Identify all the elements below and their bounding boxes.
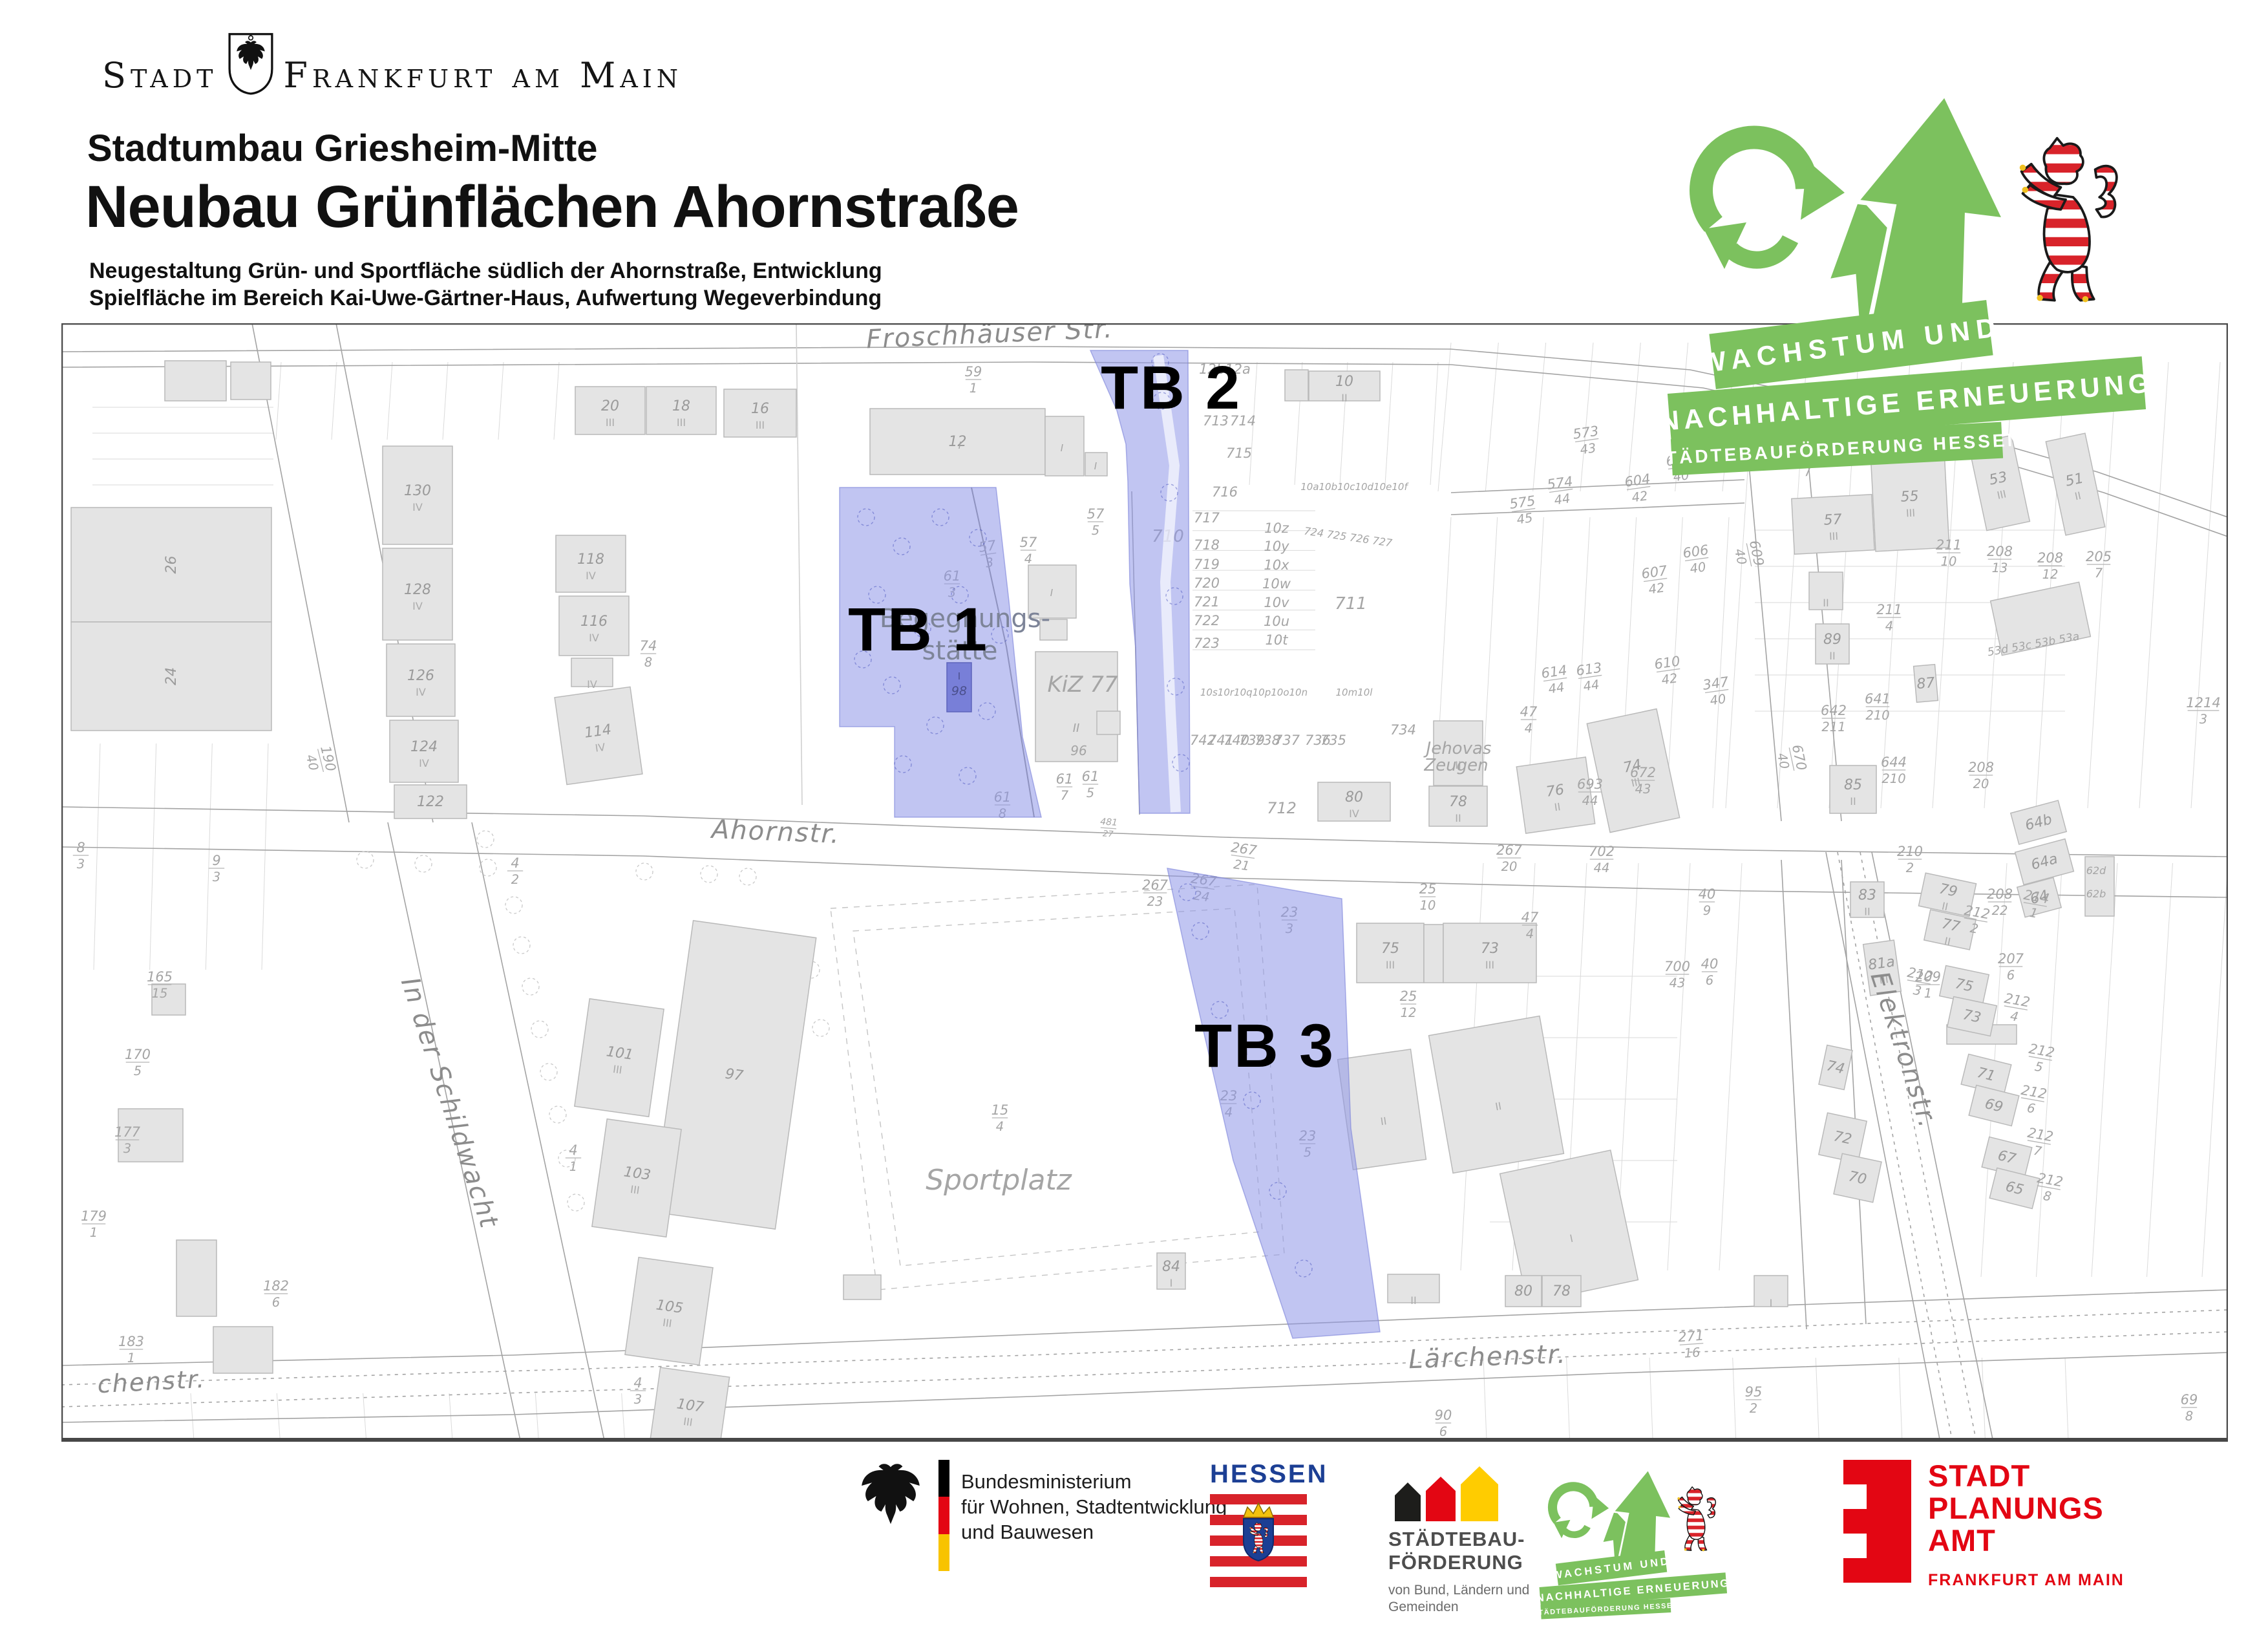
svg-text:27: 27 [1102, 829, 1114, 839]
svg-text:87: 87 [1916, 675, 1936, 692]
svg-text:711: 711 [1335, 594, 1367, 614]
parcel-fraction: 20820 [1968, 760, 1994, 791]
parcel-fraction: 26720 [1496, 842, 1523, 874]
parcel-fraction: 20813 [1987, 544, 2013, 575]
building: 124IV [390, 720, 458, 782]
svg-text:IV: IV [419, 757, 429, 769]
svg-text:Lärchenstr.: Lärchenstr. [1408, 1340, 1567, 1375]
svg-text:9: 9 [212, 853, 220, 868]
building [231, 362, 271, 400]
building: 84I [1157, 1253, 1185, 1289]
parcel-fraction: 83 [73, 840, 89, 872]
parcel-fraction: 617 [1056, 771, 1074, 803]
svg-text:10: 10 [1420, 898, 1436, 913]
svg-text:4: 4 [1525, 721, 1532, 736]
svg-text:10a10b10c10d10e10f: 10a10b10c10d10e10f [1300, 481, 1409, 493]
svg-text:IV: IV [589, 632, 599, 644]
svg-text:III: III [630, 1183, 641, 1197]
svg-text:211: 211 [1821, 720, 1845, 734]
svg-text:III: III [662, 1316, 673, 1330]
svg-text:II: II [1864, 906, 1870, 918]
svg-text:177: 177 [114, 1124, 141, 1140]
parcel-fraction: 1791 [81, 1208, 107, 1240]
svg-text:In der Schildwacht: In der Schildwacht [395, 974, 504, 1232]
svg-text:208: 208 [1987, 544, 2013, 559]
svg-text:II: II [1073, 722, 1080, 735]
spa-sub: FRANKFURT AM MAIN [1928, 1571, 2125, 1590]
svg-text:25: 25 [1400, 989, 1417, 1004]
svg-text:481: 481 [1100, 817, 1118, 828]
stb-title: STÄDTEBAU- FÖRDERUNG [1388, 1528, 1529, 1574]
svg-text:179: 179 [81, 1208, 107, 1224]
hessen-coat-of-arms [1244, 1503, 1273, 1561]
subtitle-line-2: Spielfläche im Bereich Kai-Uwe-Gärtner-H… [89, 284, 882, 312]
parcel-fraction: 474 [1520, 704, 1538, 736]
svg-text:642: 642 [1821, 703, 1847, 718]
svg-text:1: 1 [569, 1159, 577, 1174]
spa-line2: PLANUNGS [1928, 1492, 2125, 1524]
svg-text:98: 98 [951, 684, 967, 698]
wachstum-erneuerung-logo-small: WACHSTUM UNDNACHHALTIGE ERNEUERUNGSTÄDTE… [1533, 1456, 1746, 1626]
svg-text:128: 128 [404, 582, 431, 598]
wachstum-logo-group: WACHSTUM UNDNACHHALTIGE ERNEUERUNGSTÄDTE… [1652, 85, 2156, 476]
area-label-tb1: TB 1 [848, 595, 989, 664]
building [843, 1275, 881, 1300]
svg-text:672: 672 [1630, 765, 1656, 780]
svg-text:3: 3 [1912, 983, 1922, 999]
svg-text:10u: 10u [1264, 614, 1289, 629]
staedtebau-houses-icon [1388, 1460, 1503, 1524]
parcel-fraction: 952 [1745, 1384, 1763, 1416]
svg-text:II: II [1455, 812, 1461, 824]
parcel-fraction: 2512 [1400, 989, 1417, 1020]
svg-text:12: 12 [949, 434, 967, 450]
svg-text:5: 5 [1086, 786, 1094, 800]
wachstum-erneuerung-logo: WACHSTUM UNDNACHHALTIGE ERNEUERUNGSTÄDTE… [1652, 59, 2195, 493]
svg-text:Sportplatz: Sportplatz [926, 1164, 1072, 1197]
svg-text:208: 208 [1968, 760, 1994, 775]
parcel-fraction: 2057 [2086, 549, 2112, 581]
svg-text:165: 165 [147, 969, 173, 985]
building: 57III [1792, 495, 1874, 554]
building: 97 [652, 921, 816, 1229]
svg-text:43: 43 [1635, 782, 1651, 797]
parcel-fraction: 61042 [1653, 653, 1684, 688]
svg-text:42: 42 [1631, 488, 1649, 505]
building: 116IV [559, 596, 629, 656]
building: 101III [575, 999, 664, 1117]
svg-text:1: 1 [970, 381, 977, 396]
svg-text:4: 4 [1885, 619, 1893, 634]
svg-text:10y: 10y [1264, 539, 1289, 554]
svg-text:69: 69 [2181, 1392, 2198, 1407]
parcel-fraction: 642211 [1821, 703, 1847, 734]
building: 26 [71, 508, 271, 622]
svg-text:57: 57 [1087, 506, 1105, 522]
svg-text:III: III [756, 419, 765, 431]
svg-text:735: 735 [1320, 733, 1346, 748]
svg-text:57: 57 [1823, 511, 1842, 528]
svg-text:2: 2 [1906, 861, 1914, 875]
parcel-fraction: 591 [965, 364, 982, 396]
building: 107III [650, 1367, 729, 1442]
svg-text:Zeugen: Zeugen [1423, 756, 1488, 775]
building: 105III [625, 1257, 713, 1365]
hessen-lion-icon [2020, 138, 2117, 303]
building: 122 [394, 785, 467, 818]
svg-text:89: 89 [1823, 632, 1841, 648]
svg-text:212: 212 [2020, 1082, 2048, 1102]
svg-text:III: III [612, 1063, 623, 1076]
building: 78II [1429, 786, 1487, 826]
bm-line1: Bundesministerium [961, 1469, 1227, 1494]
parcel-fraction: 1831 [118, 1334, 144, 1365]
parcel-fraction: 26723 [1142, 877, 1169, 909]
svg-text:26: 26 [164, 556, 180, 574]
german-flag-bar-icon [938, 1460, 949, 1571]
parcel-fraction: 57444 [1546, 473, 1576, 508]
svg-text:6: 6 [272, 1295, 280, 1310]
svg-text:10w: 10w [1262, 576, 1291, 592]
parcel-fraction: 26721 [1228, 839, 1258, 874]
building: 78 [1542, 1276, 1581, 1307]
svg-text:II: II [1341, 392, 1347, 404]
stb-line1: STÄDTEBAU- [1388, 1528, 1529, 1551]
svg-text:718: 718 [1194, 537, 1220, 553]
city-logo-word-stadt: Stadt [102, 58, 218, 97]
svg-text:10t: 10t [1266, 632, 1289, 648]
bm-line3: und Bauwesen [961, 1519, 1227, 1545]
building: 83II [1850, 882, 1884, 918]
svg-text:5: 5 [134, 1064, 142, 1078]
svg-text:I: I [959, 440, 962, 451]
svg-text:III: III [1828, 530, 1838, 543]
svg-text:20: 20 [1973, 776, 1989, 791]
parcel-fraction: 27116 [1677, 1328, 1705, 1362]
building: 24 [71, 622, 271, 731]
svg-text:124: 124 [410, 739, 438, 755]
svg-text:212: 212 [2003, 990, 2031, 1011]
parcel-fraction: 57545 [1509, 493, 1539, 528]
spa-text: STADT PLANUNGS AMT FRANKFURT AM MAIN [1928, 1460, 2125, 1590]
svg-text:6: 6 [1706, 973, 1713, 988]
svg-text:4: 4 [1024, 551, 1032, 566]
building: II [1388, 1274, 1439, 1307]
svg-text:183: 183 [118, 1334, 144, 1349]
svg-text:IV: IV [412, 600, 423, 612]
parcel-fraction: 20822 [1987, 886, 2013, 918]
svg-text:IV: IV [594, 741, 606, 754]
frankfurt-eagle-shield-icon [227, 30, 275, 97]
svg-text:716: 716 [1212, 484, 1238, 500]
building: 103III [592, 1119, 681, 1237]
stb-line2: FÖRDERUNG [1388, 1551, 1529, 1574]
svg-text:40: 40 [1689, 559, 1707, 576]
svg-text:10x: 10x [1264, 557, 1289, 573]
parcel-fraction: 615 [1082, 769, 1099, 800]
svg-text:I: I [958, 670, 960, 682]
svg-text:40: 40 [1701, 956, 1719, 972]
parcel-fraction: 12143 [2186, 695, 2220, 727]
svg-text:16: 16 [1684, 1345, 1701, 1361]
svg-text:3: 3 [213, 870, 220, 884]
building: 10II [1309, 371, 1380, 404]
stb-sub1: von Bund, Ländern und [1388, 1582, 1529, 1599]
svg-text:III: III [1386, 959, 1395, 971]
svg-text:75: 75 [1381, 941, 1399, 957]
svg-text:47: 47 [1521, 910, 1539, 925]
parcel-fraction: 641210 [1865, 691, 1891, 723]
wachstum-logo-group: WACHSTUM UNDNACHHALTIGE ERNEUERUNGSTÄDTE… [1533, 1466, 1731, 1620]
svg-text:122: 122 [417, 794, 444, 810]
svg-text:95: 95 [1745, 1384, 1763, 1400]
building: 73III [1443, 923, 1536, 983]
subtitle-line-1: Neugestaltung Grün- und Sportfläche südl… [89, 257, 882, 284]
hessen-logo: HESSEN [1210, 1460, 1311, 1591]
svg-text:I: I [1061, 442, 1064, 454]
svg-text:10m10l: 10m10l [1336, 687, 1373, 698]
svg-text:170: 170 [125, 1047, 151, 1062]
parcel-fraction: 2126 [2017, 1082, 2048, 1118]
svg-text:IV: IV [586, 570, 596, 582]
svg-text:I: I [1770, 1297, 1773, 1309]
svg-text:212: 212 [1906, 965, 1934, 985]
svg-text:61: 61 [1056, 771, 1074, 787]
svg-text:641: 641 [1865, 691, 1891, 707]
parcel-fraction: 2510 [1419, 881, 1437, 913]
building: 128IV [383, 548, 452, 640]
svg-text:210: 210 [1897, 844, 1923, 859]
building [1045, 416, 1084, 476]
svg-text:4: 4 [569, 1142, 577, 1158]
spa-line3: AMT [1928, 1524, 2125, 1557]
building: I [1754, 1276, 1788, 1309]
recycle-arrows-icon [1701, 138, 1845, 269]
building: 16III [724, 389, 796, 437]
svg-text:1: 1 [90, 1225, 98, 1240]
svg-text:62d: 62d [2086, 864, 2106, 877]
svg-text:42: 42 [1660, 670, 1679, 687]
svg-text:212: 212 [2036, 1170, 2064, 1190]
building: 74 [1819, 1045, 1852, 1090]
parcel-fraction: 154 [991, 1102, 1009, 1134]
svg-text:44: 44 [1547, 679, 1565, 696]
svg-text:78: 78 [1449, 794, 1467, 810]
building: 64b [2011, 800, 2066, 844]
svg-text:717: 717 [1194, 510, 1220, 526]
parcel-fraction: 60742 [1640, 562, 1671, 597]
svg-text:3: 3 [77, 857, 85, 872]
svg-text:6: 6 [2026, 1100, 2036, 1117]
svg-text:8: 8 [2042, 1188, 2052, 1204]
growth-arrow-icon [1596, 1466, 1677, 1568]
svg-text:210: 210 [1865, 708, 1889, 723]
building: 75III [1357, 923, 1424, 983]
svg-text:84: 84 [1162, 1259, 1180, 1275]
svg-text:43: 43 [1579, 440, 1597, 457]
recycle-arrows-icon [1553, 1486, 1609, 1538]
svg-text:670: 670 [1789, 743, 1810, 772]
parcel-fraction: 575 [1087, 506, 1105, 538]
svg-text:10: 10 [1335, 374, 1353, 390]
parcel-fraction: 2102 [1897, 844, 1923, 875]
svg-text:44: 44 [1582, 793, 1598, 808]
svg-text:24: 24 [164, 667, 180, 685]
growth-arrow-icon [1813, 85, 2019, 345]
parcel-fraction: 906 [1435, 1407, 1452, 1439]
building-98: I98 [947, 663, 971, 712]
parcel-fraction: 574 [1020, 535, 1037, 566]
svg-text:208: 208 [2037, 550, 2063, 566]
parcel-fraction: 409 [1699, 886, 1716, 918]
stadtplanungsamt-glyph-icon [1843, 1460, 1911, 1583]
building: 80 [1505, 1276, 1542, 1307]
svg-text:715: 715 [1226, 445, 1252, 461]
svg-text:5: 5 [2033, 1059, 2044, 1075]
svg-text:4: 4 [1526, 926, 1534, 941]
svg-text:II: II [1823, 597, 1828, 609]
hessen-lion-icon [1677, 1487, 1715, 1552]
svg-text:I: I [1170, 1277, 1173, 1289]
building: 69 [1969, 1085, 2019, 1126]
svg-text:83: 83 [1858, 888, 1876, 904]
svg-text:10z: 10z [1264, 520, 1289, 536]
svg-text:644: 644 [1881, 754, 1907, 770]
parcel-fraction: 2124 [2000, 990, 2031, 1026]
building: II [1429, 1016, 1564, 1173]
svg-text:212: 212 [2026, 1125, 2055, 1145]
svg-text:I: I [1050, 587, 1054, 599]
parcel-fraction: 2076 [1998, 951, 2024, 983]
spa-line1: STADT [1928, 1460, 2125, 1492]
svg-text:62b: 62b [2086, 888, 2106, 900]
svg-text:25: 25 [1419, 881, 1437, 897]
svg-text:3: 3 [2199, 712, 2207, 727]
svg-text:2: 2 [1969, 921, 1979, 937]
svg-text:80: 80 [1345, 789, 1363, 806]
svg-text:1: 1 [1924, 986, 1932, 1001]
tb-areas [840, 350, 1380, 1338]
svg-text:126: 126 [407, 668, 434, 684]
svg-text:15: 15 [991, 1102, 1009, 1118]
parcel-fraction: 21110 [1936, 537, 1962, 569]
parcel-fraction: 61344 [1575, 659, 1606, 694]
stadtplanungsamt-logo: STADT PLANUNGS AMT FRANKFURT AM MAIN [1843, 1460, 2125, 1590]
svg-text:702: 702 [1589, 844, 1615, 859]
svg-text:40: 40 [303, 753, 321, 773]
svg-text:12: 12 [1401, 1005, 1417, 1020]
parcel-fraction: 19040 [302, 744, 339, 777]
parcel-fraction: 93 [209, 853, 224, 884]
svg-text:44: 44 [1594, 861, 1610, 875]
building [1097, 711, 1120, 734]
svg-text:720: 720 [1194, 575, 1220, 591]
svg-text:1: 1 [127, 1351, 135, 1365]
svg-text:700: 700 [1664, 959, 1690, 974]
svg-text:III: III [1905, 507, 1915, 520]
svg-text:12: 12 [2042, 567, 2059, 582]
parcel-fraction: 42 [507, 855, 523, 887]
building: 118IV [556, 535, 626, 592]
svg-text:59: 59 [965, 364, 982, 380]
svg-text:47: 47 [1520, 704, 1538, 720]
svg-text:20: 20 [1501, 859, 1518, 874]
svg-text:III: III [677, 416, 686, 429]
svg-text:III: III [1485, 959, 1494, 971]
staedtebaufoerderung-logo: STÄDTEBAU- FÖRDERUNG von Bund, Ländern u… [1388, 1460, 1529, 1616]
svg-text:1: 1 [2028, 905, 2039, 921]
building: 20III [575, 387, 645, 434]
svg-text:207: 207 [1998, 951, 2024, 967]
svg-text:II: II [1829, 650, 1835, 662]
building [1285, 370, 1308, 401]
area-label-tb2: TB 2 [1101, 354, 1242, 422]
svg-text:6: 6 [2007, 968, 2015, 983]
svg-text:737: 737 [1274, 733, 1300, 748]
svg-text:45: 45 [1516, 510, 1534, 527]
svg-text:130: 130 [404, 483, 431, 499]
building: 18III [646, 387, 716, 434]
svg-text:3: 3 [123, 1141, 131, 1156]
svg-text:211: 211 [1936, 537, 1962, 553]
parcel-fraction: 644210 [1881, 754, 1907, 786]
svg-text:40: 40 [1699, 886, 1716, 902]
building: II [1809, 572, 1843, 610]
svg-text:40: 40 [1732, 547, 1750, 566]
svg-text:73: 73 [1481, 941, 1499, 957]
svg-text:8: 8 [2185, 1409, 2193, 1424]
building: 87 [1914, 665, 1938, 703]
parcel-fraction: 48127 [1099, 817, 1118, 840]
svg-text:4: 4 [511, 855, 519, 871]
building: 64a [2015, 839, 2074, 885]
area-TB3 [1167, 868, 1380, 1338]
building: 70 [1834, 1153, 1881, 1202]
svg-text:211: 211 [1876, 602, 1902, 617]
svg-text:Ahornstr.: Ahornstr. [709, 815, 841, 850]
svg-text:4: 4 [2009, 1009, 2019, 1025]
svg-text:7: 7 [1061, 788, 1069, 803]
svg-text:I: I [1094, 460, 1097, 472]
svg-text:609: 609 [1746, 539, 1767, 568]
svg-text:Froschhäuser Str.: Froschhäuser Str. [865, 323, 1114, 354]
svg-text:721: 721 [1194, 594, 1220, 610]
svg-text:21: 21 [1233, 857, 1251, 873]
svg-text:IV: IV [412, 501, 423, 513]
svg-text:7: 7 [2095, 566, 2103, 581]
svg-text:IV: IV [1349, 808, 1359, 820]
building: 130IV [383, 446, 452, 544]
svg-text:116: 116 [580, 614, 608, 630]
parcel-fraction: 1705 [125, 1047, 151, 1078]
svg-text:61: 61 [1082, 769, 1099, 784]
parcel-fraction: 43 [630, 1375, 646, 1407]
page-title-project: Stadtumbau Griesheim-Mitte [87, 127, 598, 170]
svg-text:2: 2 [511, 872, 519, 887]
area-label-tb3: TB 3 [1194, 1012, 1335, 1080]
parcel-fraction: 57343 [1572, 423, 1602, 458]
svg-text:III: III [683, 1415, 694, 1429]
svg-text:271: 271 [1677, 1328, 1704, 1345]
svg-text:II: II [1410, 1294, 1416, 1307]
bundesministerium-logo: Bundesministerium für Wohnen, Stadtentwi… [854, 1460, 1227, 1571]
svg-text:II: II [1850, 795, 1856, 808]
parcel-fraction: 60640 [1682, 542, 1712, 577]
parcel-fraction: 748 [640, 638, 657, 670]
svg-text:723: 723 [1194, 636, 1220, 651]
svg-text:20: 20 [601, 398, 619, 414]
svg-text:210: 210 [1881, 771, 1905, 786]
